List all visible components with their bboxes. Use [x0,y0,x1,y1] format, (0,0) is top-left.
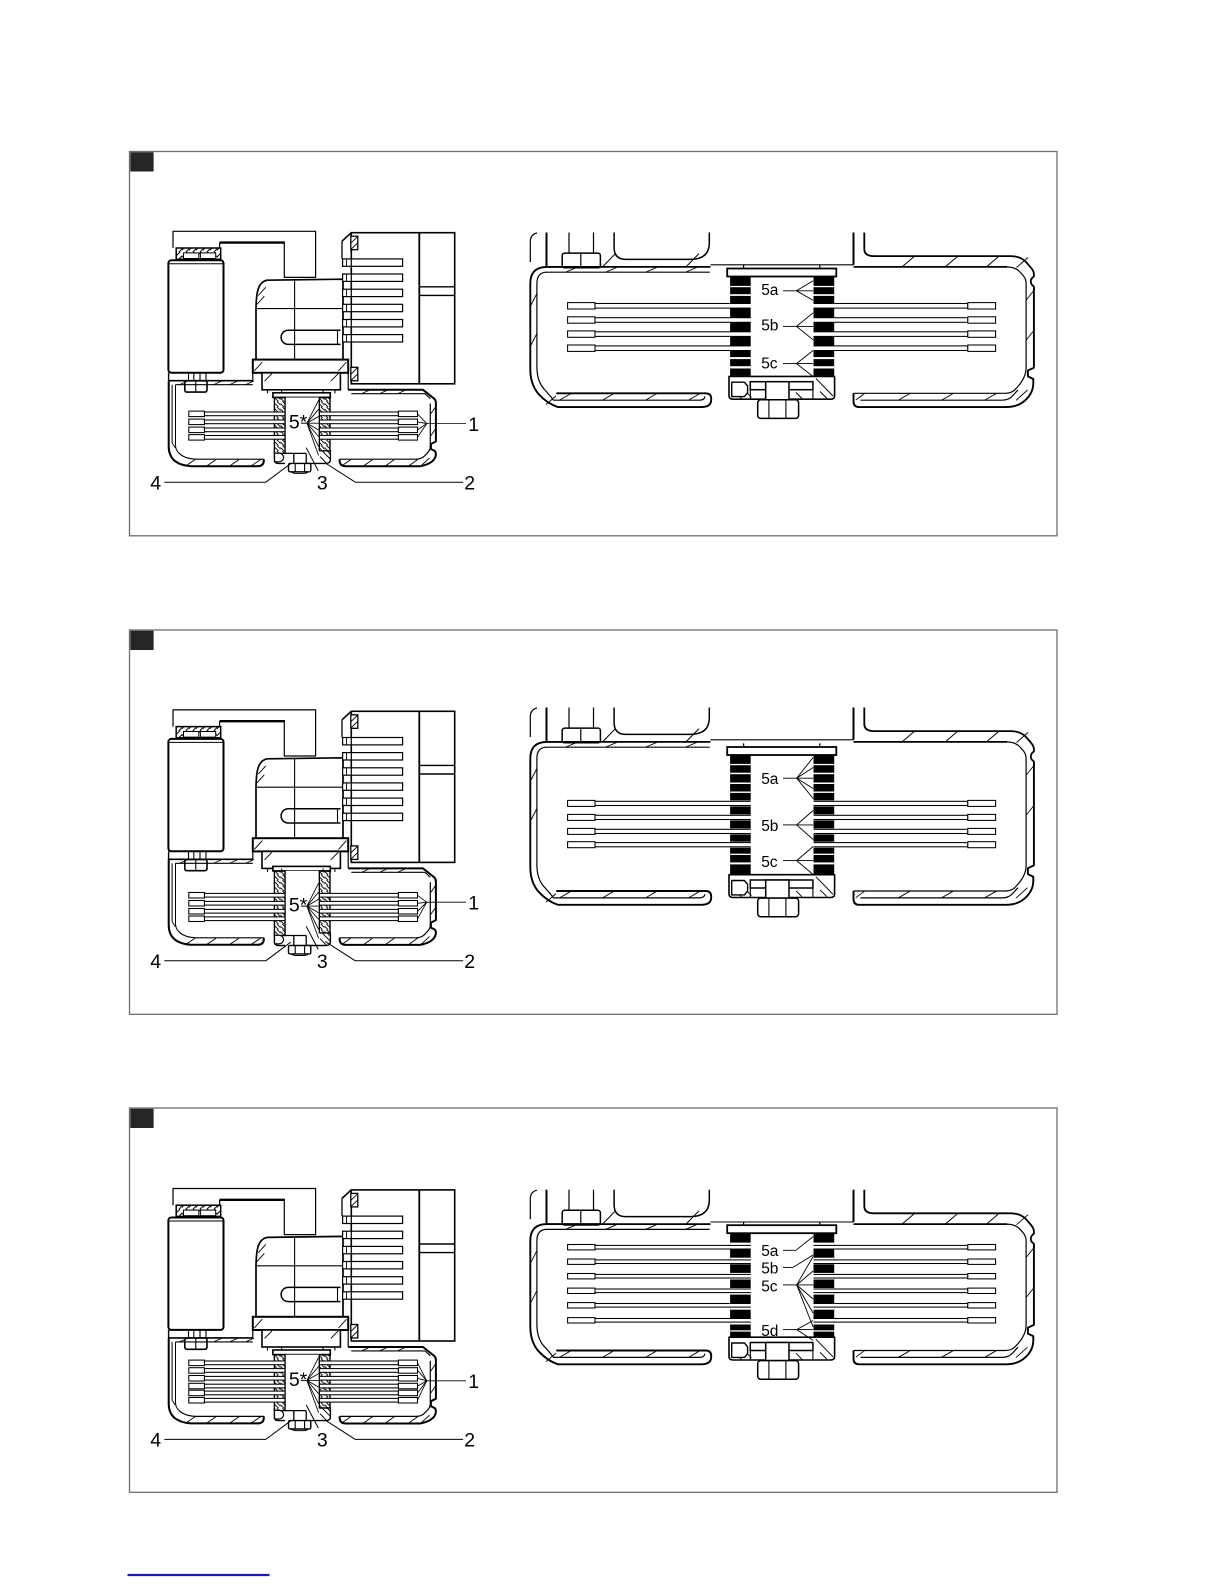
svg-text:5*: 5* [289,895,308,917]
svg-text:5b: 5b [761,1261,778,1278]
svg-text:5*: 5* [289,412,308,434]
svg-text:5b: 5b [761,318,778,335]
svg-text:1: 1 [468,414,479,436]
svg-text:5b: 5b [761,818,778,835]
svg-text:2: 2 [464,951,475,973]
svg-text:5a: 5a [761,771,779,788]
svg-text:5a: 5a [761,282,779,299]
svg-text:2: 2 [464,472,475,494]
svg-text:3: 3 [317,951,328,973]
svg-text:5d: 5d [761,1323,778,1340]
svg-text:5c: 5c [761,1278,778,1295]
svg-text:1: 1 [468,1371,479,1393]
svg-text:3: 3 [317,1430,328,1452]
svg-text:5a: 5a [761,1243,779,1260]
svg-text:3: 3 [317,472,328,494]
svg-text:1: 1 [468,892,479,914]
svg-text:5c: 5c [761,854,778,871]
svg-text:4: 4 [150,951,161,973]
svg-text:5c: 5c [761,355,778,372]
svg-text:4: 4 [150,1430,161,1452]
svg-text:2: 2 [464,1430,475,1452]
svg-text:5*: 5* [289,1369,308,1391]
svg-text:4: 4 [150,472,161,494]
